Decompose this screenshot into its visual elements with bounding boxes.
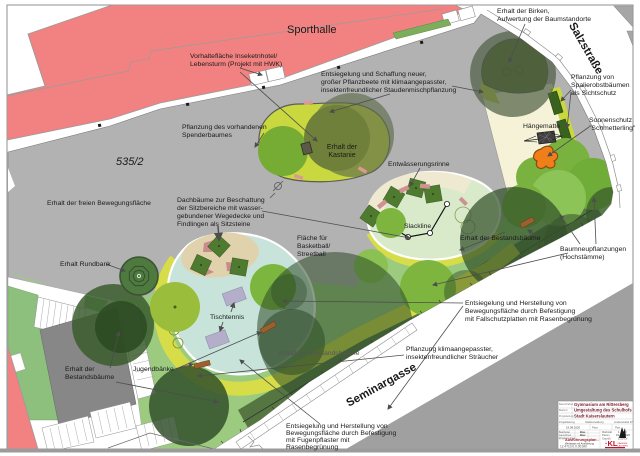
- svg-text:Kastanie: Kastanie: [328, 152, 355, 159]
- svg-text:Bau: Bau: [580, 433, 586, 437]
- svg-text:Lebensturm (Projekt mit HWK): Lebensturm (Projekt mit HWK): [190, 61, 282, 68]
- svg-text:Stadt Kaiserslautern: Stadt Kaiserslautern: [574, 414, 615, 419]
- svg-text:Erhalt Rundbank: Erhalt Rundbank: [60, 261, 111, 268]
- svg-text:Erhalt der Bestandsbäume: Erhalt der Bestandsbäume: [279, 350, 360, 357]
- svg-text:"Schmetterling": "Schmetterling": [589, 125, 636, 132]
- svg-text:Pflanzung des vorhandenen: Pflanzung des vorhandenen: [182, 124, 267, 131]
- svg-text:Projektleitung: Projektleitung: [559, 420, 575, 424]
- svg-text:Sonnenschutz: Sonnenschutz: [589, 117, 633, 124]
- svg-text:Dachbäume zur Beschattung: Dachbäume zur Beschattung: [177, 197, 265, 204]
- svg-text:Streetball: Streetball: [297, 251, 326, 258]
- svg-text:Bauvorhaben: Bauvorhaben: [559, 403, 574, 406]
- svg-text:Rasenbegrünung: Rasenbegrünung: [286, 444, 338, 451]
- svg-text:insektenfreundlicher Sträucher: insektenfreundlicher Sträucher: [406, 354, 499, 361]
- svg-text:als Sichtschutz: als Sichtschutz: [571, 90, 617, 97]
- svg-text:Erhalt der freien Bewegungsflä: Erhalt der freien Bewegungsfläche: [47, 200, 151, 207]
- svg-text:mit Fallschutzplatten mit Rase: mit Fallschutzplatten mit Rasenbegrünung: [465, 316, 592, 323]
- svg-text:12.4710.0.0.001A0: 12.4710.0.0.001A0: [560, 445, 587, 449]
- svg-text:Fläche für: Fläche für: [297, 235, 328, 242]
- svg-text:Jugendbänke: Jugendbänke: [133, 366, 174, 373]
- svg-text:Entwässerungsrinne: Entwässerungsrinne: [388, 161, 450, 168]
- svg-text:insektenfreundlicher Staudenmi: insektenfreundlicher Staudenmischpflanzu…: [321, 87, 456, 94]
- svg-text:Tischtennis: Tischtennis: [210, 314, 245, 321]
- svg-text:Baumneupflanzungen: Baumneupflanzungen: [560, 246, 626, 253]
- svg-text:Platz: Platz: [592, 426, 598, 430]
- svg-text:Basketball/: Basketball/: [297, 243, 330, 250]
- svg-text:Erhalt der: Erhalt der: [65, 366, 95, 373]
- svg-text:19.08.2020: 19.08.2020: [566, 426, 580, 430]
- svg-text:·KL: ·KL: [605, 439, 618, 448]
- svg-text:der Sitzbereiche mit wasser-: der Sitzbereiche mit wasser-: [177, 205, 263, 212]
- svg-text:535/2: 535/2: [116, 156, 144, 168]
- svg-text:Ausführungsplan -: Ausführungsplan -: [565, 438, 599, 442]
- svg-text:Pflanzung klimaangepasster,: Pflanzung klimaangepasster,: [406, 346, 493, 353]
- svg-text:Maßstab: Maßstab: [602, 430, 613, 434]
- svg-text:Pflanzung von: Pflanzung von: [571, 74, 614, 81]
- svg-text:Bewegungsfläche durch Befestig: Bewegungsfläche durch Befestigung: [286, 430, 397, 437]
- svg-text:Slackline: Slackline: [404, 223, 431, 230]
- svg-text:Stadtverwaltung: Stadtverwaltung: [585, 420, 604, 424]
- svg-text:Projektleitung: Projektleitung: [559, 415, 574, 418]
- svg-text:Erhalt der: Erhalt der: [327, 144, 358, 151]
- svg-text:mit Fugenpflaster mit: mit Fugenpflaster mit: [286, 437, 350, 444]
- svg-text:Vorhaltefläche Inseketnhotel/: Vorhaltefläche Inseketnhotel/: [190, 53, 277, 60]
- svg-text:Erhalt der Bestandsbäume: Erhalt der Bestandsbäume: [460, 235, 541, 242]
- svg-text:Entsiegelung und Schaffung neu: Entsiegelung und Schaffung neuer,: [321, 71, 427, 78]
- svg-text:Spenderbaumes: Spenderbaumes: [182, 132, 232, 139]
- svg-text:Sporthalle: Sporthalle: [287, 24, 337, 36]
- svg-text:(Hochstämme): (Hochstämme): [560, 254, 605, 261]
- svg-text:Erhalt der Birken,: Erhalt der Birken,: [497, 8, 550, 15]
- svg-text:Entsiegelung und Herstellung v: Entsiegelung und Herstellung von: [465, 300, 567, 307]
- svg-text:Findlingen als Sitzsteine: Findlingen als Sitzsteine: [177, 221, 251, 228]
- svg-text:Bestandsbäume: Bestandsbäume: [65, 374, 114, 381]
- svg-text:Umgestaltung des Schulhofs: Umgestaltung des Schulhofs: [574, 408, 632, 413]
- svg-text:Entsiegelung und Herstellung v: Entsiegelung und Herstellung von: [286, 423, 388, 430]
- svg-text:großer Pflanzbeete mit klimaan: großer Pflanzbeete mit klimaangepasster,: [321, 79, 447, 86]
- svg-text:gebundener Wegedecke und: gebundener Wegedecke und: [177, 213, 264, 220]
- svg-text:Hängematte: Hängematte: [523, 123, 560, 130]
- svg-text:Datum: Datum: [602, 433, 610, 437]
- svg-text:Gymnasium am Rittersberg: Gymnasium am Rittersberg: [574, 402, 629, 407]
- svg-text:Lindenstraße 67: Lindenstraße 67: [614, 420, 633, 424]
- svg-text:Spalierobstbäumen: Spalierobstbäumen: [571, 82, 630, 89]
- svg-text:Bewegungsfläche durch Befestig: Bewegungsfläche durch Befestigung: [465, 308, 576, 315]
- svg-text:Bauherr: Bauherr: [559, 409, 568, 412]
